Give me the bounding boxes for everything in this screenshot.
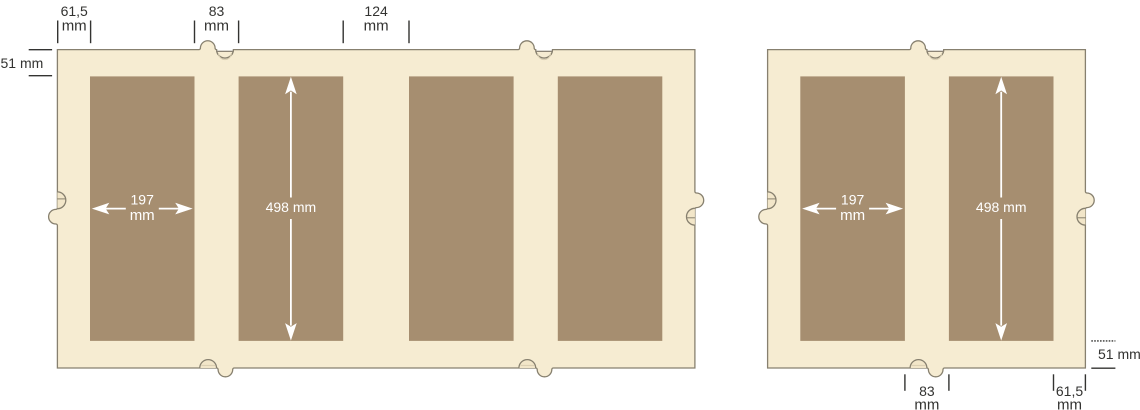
svg-text:mm: mm bbox=[204, 17, 229, 34]
svg-text:197: 197 bbox=[131, 192, 155, 208]
svg-text:197: 197 bbox=[841, 192, 865, 208]
svg-text:498 mm: 498 mm bbox=[266, 199, 317, 215]
svg-text:mm: mm bbox=[1057, 397, 1082, 410]
svg-text:mm: mm bbox=[364, 17, 389, 34]
svg-text:mm: mm bbox=[130, 207, 155, 224]
svg-text:51 mm: 51 mm bbox=[1098, 346, 1140, 362]
svg-text:mm: mm bbox=[914, 397, 939, 410]
svg-text:mm: mm bbox=[62, 17, 87, 34]
svg-text:mm: mm bbox=[840, 207, 865, 224]
svg-text:498 mm: 498 mm bbox=[976, 199, 1027, 215]
svg-text:51 mm: 51 mm bbox=[1, 55, 44, 71]
